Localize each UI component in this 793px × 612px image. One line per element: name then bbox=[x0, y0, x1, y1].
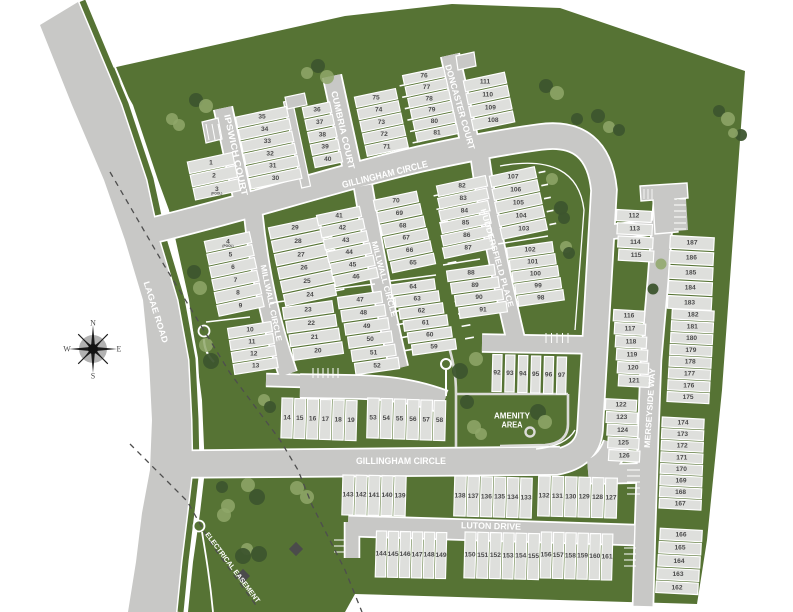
svg-text:50: 50 bbox=[367, 336, 375, 343]
svg-text:92: 92 bbox=[493, 370, 501, 377]
svg-text:48: 48 bbox=[360, 310, 368, 317]
svg-text:AREA: AREA bbox=[502, 421, 523, 430]
svg-text:40: 40 bbox=[324, 156, 332, 163]
svg-text:9: 9 bbox=[239, 303, 243, 310]
svg-text:135: 135 bbox=[494, 494, 505, 501]
svg-text:74: 74 bbox=[375, 107, 383, 114]
svg-text:S: S bbox=[91, 372, 95, 381]
svg-text:110: 110 bbox=[482, 91, 493, 98]
svg-text:141: 141 bbox=[368, 492, 379, 499]
svg-text:84: 84 bbox=[461, 207, 469, 214]
svg-text:68: 68 bbox=[399, 222, 407, 229]
svg-text:77: 77 bbox=[423, 84, 431, 91]
svg-text:155: 155 bbox=[528, 553, 539, 560]
svg-text:89: 89 bbox=[471, 282, 479, 289]
svg-text:129: 129 bbox=[579, 494, 590, 501]
svg-text:159: 159 bbox=[577, 553, 588, 560]
svg-text:126: 126 bbox=[619, 452, 630, 459]
svg-text:118: 118 bbox=[626, 339, 637, 346]
svg-text:18: 18 bbox=[335, 417, 343, 424]
svg-text:142: 142 bbox=[355, 492, 366, 499]
svg-text:130: 130 bbox=[565, 493, 576, 500]
svg-text:22: 22 bbox=[308, 320, 316, 327]
svg-text:42: 42 bbox=[339, 225, 347, 232]
svg-text:127: 127 bbox=[605, 495, 616, 502]
svg-text:137: 137 bbox=[468, 493, 479, 500]
svg-text:62: 62 bbox=[418, 308, 426, 315]
svg-text:174: 174 bbox=[677, 420, 688, 427]
svg-text:34: 34 bbox=[261, 126, 269, 133]
svg-text:104: 104 bbox=[516, 213, 527, 220]
svg-text:125: 125 bbox=[618, 440, 629, 447]
svg-text:88: 88 bbox=[467, 270, 475, 277]
svg-text:65: 65 bbox=[409, 260, 417, 267]
svg-text:128: 128 bbox=[592, 494, 603, 501]
svg-text:153: 153 bbox=[503, 552, 514, 559]
svg-text:184: 184 bbox=[685, 285, 696, 292]
svg-text:163: 163 bbox=[672, 571, 683, 578]
svg-text:106: 106 bbox=[510, 187, 521, 194]
svg-text:185: 185 bbox=[685, 270, 696, 277]
svg-text:90: 90 bbox=[475, 294, 483, 301]
svg-text:54: 54 bbox=[383, 415, 391, 422]
svg-text:31: 31 bbox=[269, 163, 277, 170]
svg-text:138: 138 bbox=[454, 493, 465, 500]
svg-text:115: 115 bbox=[631, 252, 642, 259]
svg-text:49: 49 bbox=[363, 323, 371, 330]
svg-text:38: 38 bbox=[319, 131, 327, 138]
svg-text:46: 46 bbox=[352, 274, 360, 281]
svg-text:80: 80 bbox=[431, 118, 439, 125]
svg-text:71: 71 bbox=[383, 143, 391, 150]
svg-text:AMENITY: AMENITY bbox=[494, 412, 531, 421]
svg-text:134: 134 bbox=[507, 494, 518, 501]
svg-text:165: 165 bbox=[674, 545, 685, 552]
svg-text:154: 154 bbox=[515, 553, 526, 560]
svg-text:29: 29 bbox=[291, 225, 299, 232]
svg-text:113: 113 bbox=[629, 226, 640, 233]
svg-text:57: 57 bbox=[423, 417, 431, 424]
svg-text:78: 78 bbox=[426, 95, 434, 102]
svg-text:52: 52 bbox=[373, 363, 381, 370]
svg-text:107: 107 bbox=[507, 174, 518, 181]
svg-text:60: 60 bbox=[426, 332, 434, 339]
svg-text:27: 27 bbox=[297, 251, 305, 258]
svg-text:67: 67 bbox=[403, 235, 411, 242]
svg-text:45: 45 bbox=[349, 261, 357, 268]
svg-text:8: 8 bbox=[236, 290, 240, 297]
svg-text:183: 183 bbox=[684, 300, 695, 307]
svg-text:33: 33 bbox=[264, 138, 272, 145]
svg-text:96: 96 bbox=[545, 372, 553, 379]
svg-text:144: 144 bbox=[375, 551, 386, 558]
svg-text:1: 1 bbox=[209, 160, 213, 167]
svg-text:187: 187 bbox=[686, 240, 697, 247]
svg-text:N: N bbox=[90, 319, 96, 328]
svg-text:17: 17 bbox=[322, 416, 330, 423]
svg-text:186: 186 bbox=[686, 255, 697, 262]
svg-text:21: 21 bbox=[311, 334, 319, 341]
svg-text:114: 114 bbox=[630, 239, 641, 246]
svg-text:94: 94 bbox=[519, 371, 527, 378]
svg-text:133: 133 bbox=[520, 495, 531, 502]
svg-text:143: 143 bbox=[342, 492, 353, 499]
svg-text:32: 32 bbox=[266, 150, 274, 157]
svg-text:116: 116 bbox=[624, 313, 635, 320]
svg-text:(POOL): (POOL) bbox=[211, 192, 222, 196]
svg-text:W: W bbox=[63, 345, 71, 354]
svg-text:41: 41 bbox=[335, 213, 343, 220]
svg-text:147: 147 bbox=[411, 551, 422, 558]
svg-text:16: 16 bbox=[309, 416, 317, 423]
svg-text:43: 43 bbox=[342, 237, 350, 244]
svg-text:56: 56 bbox=[409, 416, 417, 423]
svg-text:132: 132 bbox=[538, 493, 549, 500]
svg-text:44: 44 bbox=[346, 249, 354, 256]
svg-text:91: 91 bbox=[479, 306, 487, 313]
svg-text:123: 123 bbox=[616, 414, 627, 421]
svg-text:55: 55 bbox=[396, 416, 404, 423]
svg-text:35: 35 bbox=[258, 114, 266, 121]
svg-text:73: 73 bbox=[378, 119, 386, 126]
svg-text:85: 85 bbox=[462, 220, 470, 227]
svg-text:76: 76 bbox=[420, 73, 428, 80]
svg-text:95: 95 bbox=[532, 371, 540, 378]
svg-text:30: 30 bbox=[272, 175, 280, 182]
svg-text:139: 139 bbox=[394, 492, 405, 499]
svg-text:20: 20 bbox=[314, 348, 322, 355]
svg-text:169: 169 bbox=[675, 478, 686, 485]
svg-text:61: 61 bbox=[422, 320, 430, 327]
svg-text:170: 170 bbox=[676, 466, 687, 473]
svg-text:59: 59 bbox=[430, 344, 438, 351]
svg-text:66: 66 bbox=[406, 247, 414, 254]
svg-text:28: 28 bbox=[294, 238, 302, 245]
svg-text:152: 152 bbox=[490, 552, 501, 559]
svg-text:83: 83 bbox=[460, 195, 468, 202]
svg-text:167: 167 bbox=[675, 501, 686, 508]
svg-text:24: 24 bbox=[306, 292, 314, 299]
svg-text:181: 181 bbox=[687, 323, 698, 330]
svg-text:E: E bbox=[117, 345, 122, 354]
svg-text:122: 122 bbox=[615, 402, 626, 409]
svg-text:25: 25 bbox=[303, 278, 311, 285]
svg-text:117: 117 bbox=[625, 326, 636, 333]
svg-text:97: 97 bbox=[558, 372, 566, 379]
svg-text:109: 109 bbox=[485, 104, 496, 111]
svg-text:108: 108 bbox=[488, 117, 499, 124]
svg-text:LUTON DRIVE: LUTON DRIVE bbox=[461, 520, 521, 532]
svg-text:19: 19 bbox=[347, 417, 355, 424]
svg-text:2: 2 bbox=[212, 173, 216, 180]
svg-text:93: 93 bbox=[506, 370, 514, 377]
svg-text:47: 47 bbox=[356, 297, 364, 304]
svg-text:5: 5 bbox=[229, 251, 233, 258]
svg-text:182: 182 bbox=[687, 312, 698, 319]
svg-text:172: 172 bbox=[677, 443, 688, 450]
svg-text:(POOL): (POOL) bbox=[222, 244, 233, 248]
svg-text:168: 168 bbox=[675, 489, 686, 496]
svg-text:177: 177 bbox=[684, 371, 695, 378]
svg-text:180: 180 bbox=[686, 335, 697, 342]
svg-text:161: 161 bbox=[601, 554, 612, 561]
svg-text:173: 173 bbox=[677, 431, 688, 438]
svg-text:164: 164 bbox=[673, 558, 684, 565]
svg-text:12: 12 bbox=[250, 351, 258, 358]
svg-text:150: 150 bbox=[464, 552, 475, 559]
svg-text:148: 148 bbox=[423, 552, 434, 559]
svg-text:82: 82 bbox=[458, 183, 466, 190]
svg-text:124: 124 bbox=[617, 427, 628, 434]
svg-text:121: 121 bbox=[628, 378, 639, 385]
svg-text:179: 179 bbox=[685, 347, 696, 354]
svg-text:39: 39 bbox=[321, 144, 329, 151]
svg-text:136: 136 bbox=[481, 493, 492, 500]
svg-text:99: 99 bbox=[534, 283, 542, 290]
svg-text:151: 151 bbox=[477, 552, 488, 559]
svg-text:112: 112 bbox=[629, 213, 640, 220]
svg-text:51: 51 bbox=[370, 349, 378, 356]
svg-text:11: 11 bbox=[248, 339, 255, 346]
svg-text:87: 87 bbox=[464, 245, 472, 252]
svg-text:111: 111 bbox=[480, 79, 491, 86]
svg-text:81: 81 bbox=[433, 130, 441, 137]
svg-text:145: 145 bbox=[387, 551, 398, 558]
svg-text:37: 37 bbox=[316, 119, 324, 126]
svg-text:70: 70 bbox=[392, 198, 400, 205]
svg-text:79: 79 bbox=[428, 107, 436, 114]
svg-text:166: 166 bbox=[675, 532, 686, 539]
svg-text:102: 102 bbox=[524, 247, 535, 254]
svg-text:105: 105 bbox=[513, 200, 524, 207]
svg-text:171: 171 bbox=[676, 454, 687, 461]
svg-text:178: 178 bbox=[685, 359, 696, 366]
svg-text:10: 10 bbox=[246, 327, 254, 334]
svg-text:101: 101 bbox=[527, 259, 538, 266]
svg-text:6: 6 bbox=[231, 264, 235, 271]
svg-text:158: 158 bbox=[565, 552, 576, 559]
svg-text:176: 176 bbox=[683, 382, 694, 389]
svg-text:103: 103 bbox=[518, 226, 529, 233]
svg-text:140: 140 bbox=[381, 492, 392, 499]
svg-text:26: 26 bbox=[300, 265, 308, 272]
svg-text:63: 63 bbox=[414, 296, 422, 303]
svg-text:162: 162 bbox=[671, 584, 682, 591]
svg-text:14: 14 bbox=[283, 415, 291, 422]
svg-text:GILLINGHAM CIRCLE: GILLINGHAM CIRCLE bbox=[356, 456, 446, 466]
svg-text:98: 98 bbox=[537, 295, 545, 302]
svg-text:7: 7 bbox=[234, 277, 238, 284]
svg-text:13: 13 bbox=[252, 363, 260, 370]
svg-text:131: 131 bbox=[552, 493, 563, 500]
svg-text:160: 160 bbox=[589, 553, 600, 560]
svg-text:149: 149 bbox=[435, 552, 446, 559]
svg-text:75: 75 bbox=[372, 95, 380, 102]
svg-text:146: 146 bbox=[399, 551, 410, 558]
svg-text:157: 157 bbox=[553, 552, 564, 559]
svg-text:64: 64 bbox=[409, 284, 417, 291]
svg-text:36: 36 bbox=[313, 107, 321, 114]
svg-text:119: 119 bbox=[627, 352, 638, 359]
svg-text:120: 120 bbox=[627, 365, 638, 372]
svg-text:58: 58 bbox=[436, 417, 444, 424]
svg-text:86: 86 bbox=[463, 232, 471, 239]
svg-text:156: 156 bbox=[540, 552, 551, 559]
svg-text:72: 72 bbox=[380, 131, 388, 138]
svg-text:53: 53 bbox=[369, 415, 377, 422]
svg-text:69: 69 bbox=[396, 210, 404, 217]
svg-text:23: 23 bbox=[304, 307, 312, 314]
svg-text:100: 100 bbox=[530, 271, 541, 278]
svg-text:15: 15 bbox=[296, 415, 304, 422]
svg-text:175: 175 bbox=[683, 394, 694, 401]
